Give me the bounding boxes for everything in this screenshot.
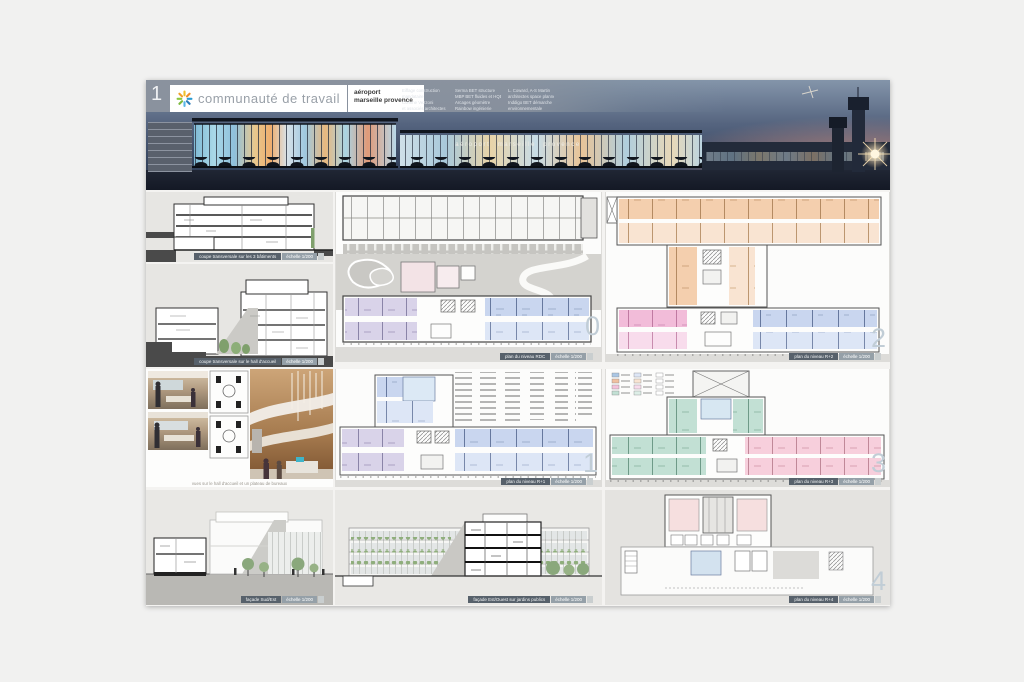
team-logo-box: communauté de travail bbox=[170, 85, 347, 112]
elevation-caption: façade Sud/Estéchelle 1/200 bbox=[241, 596, 324, 603]
terminal-sign: aéroport marseille provence bbox=[418, 142, 618, 148]
panel-plan-1: 1 plan du niveau R+1échelle 1/200 bbox=[335, 369, 602, 487]
level-number: 1 bbox=[583, 450, 598, 477]
board-number: 1 bbox=[151, 83, 162, 106]
section-b-drawing bbox=[146, 264, 333, 367]
photos-caption: vues sur le hall d'accueil et un plateau… bbox=[146, 481, 333, 486]
hero-panorama: aéroport marseille provence 1 commu bbox=[146, 80, 890, 190]
panel-plan-0: 0 plan du niveau RDCéchelle 1/200 bbox=[335, 192, 602, 362]
interior-renderings bbox=[146, 369, 333, 487]
elevation-drawing bbox=[146, 490, 333, 605]
credit-column: L. Coward, A-S Martinarchitectes space p… bbox=[508, 88, 554, 112]
level-number: 3 bbox=[871, 450, 886, 477]
panel-interior-views: vues sur le hall d'accueil et un plateau… bbox=[146, 369, 333, 487]
plan-4-caption: plan du niveau R+4échelle 1/200 bbox=[789, 596, 881, 603]
level-number: 2 bbox=[871, 325, 886, 352]
section-a-caption: coupe transversale sur les 3 bâtimentséc… bbox=[194, 253, 324, 260]
plan-0-drawing bbox=[335, 192, 602, 362]
plan-3-caption: plan du niveau R+3échelle 1/200 bbox=[789, 478, 881, 485]
panel-facade: façade Est/Ouest sur jardins publicséche… bbox=[335, 490, 602, 605]
plan-4-drawing bbox=[605, 490, 890, 605]
panel-plan-2: 2 plan du niveau R+2échelle 1/200 bbox=[605, 192, 890, 362]
presentation-board: aéroport marseille provence 1 commu bbox=[146, 80, 890, 606]
plan-2-drawing bbox=[605, 192, 890, 362]
panel-plan-3: 3 plan du niveau R+3échelle 1/200 bbox=[605, 369, 890, 487]
plan-0-caption: plan du niveau RDCéchelle 1/200 bbox=[500, 353, 593, 360]
credit-column: Eiffage constructionmandataire Corinne V… bbox=[402, 88, 448, 112]
panel-section-a: coupe transversale sur les 3 bâtimentséc… bbox=[146, 192, 333, 262]
plan-1-caption: plan du niveau R+1échelle 1/200 bbox=[501, 478, 593, 485]
team-name: communauté de travail bbox=[198, 91, 340, 106]
credit-column: Serma BET structureMBP BET fluides et HQ… bbox=[455, 88, 501, 112]
panel-plan-4: 4 plan du niveau R+4échelle 1/200 bbox=[605, 490, 890, 605]
plan-1-drawing bbox=[335, 369, 602, 487]
plan-3-drawing bbox=[605, 369, 890, 487]
panel-elevation: façade Sud/Estéchelle 1/200 bbox=[146, 490, 333, 605]
plan-2-caption: plan du niveau R+2échelle 1/200 bbox=[789, 353, 881, 360]
page-background: aéroport marseille provence 1 commu bbox=[0, 0, 1024, 682]
panel-section-b: coupe transversale sur le hall d'accueil… bbox=[146, 264, 333, 367]
level-number: 0 bbox=[585, 313, 600, 340]
section-a-drawing bbox=[146, 192, 333, 262]
facade-drawing bbox=[335, 490, 602, 605]
section-b-caption: coupe transversale sur le hall d'accueil… bbox=[194, 358, 324, 365]
level-number: 4 bbox=[871, 568, 886, 595]
facade-caption: façade Est/Ouest sur jardins publicséche… bbox=[468, 596, 593, 603]
communaute-pinwheel-logo-icon bbox=[176, 90, 193, 107]
credits-block: Eiffage constructionmandataire Corinne V… bbox=[402, 88, 554, 112]
